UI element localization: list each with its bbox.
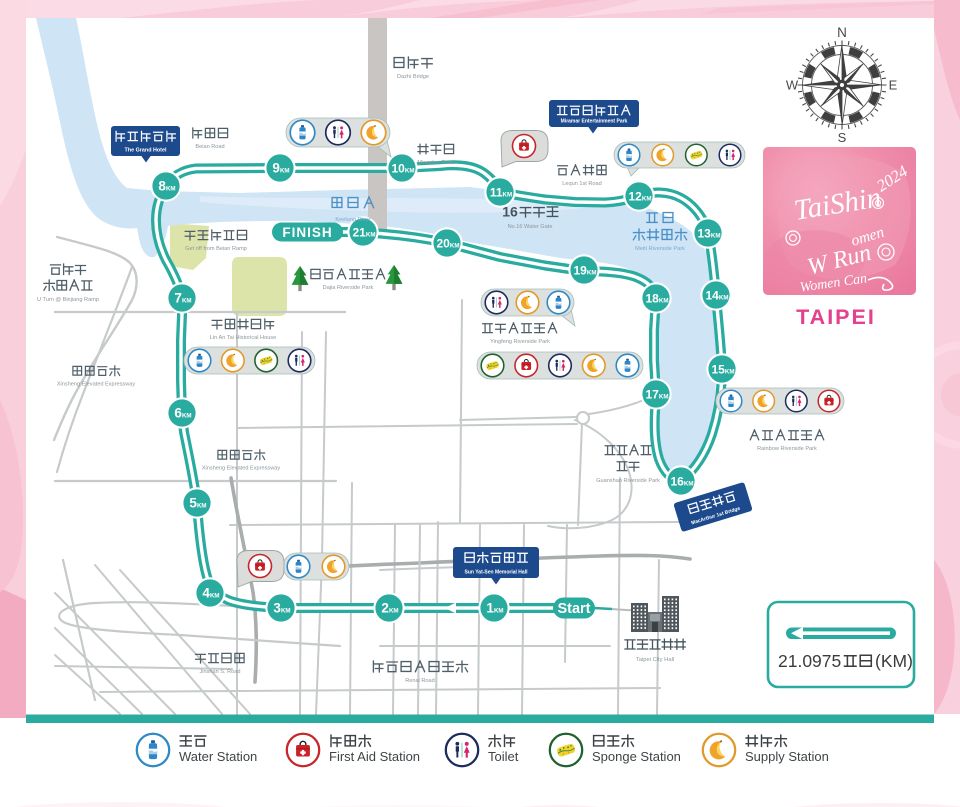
svg-text:No.16 Water Gate: No.16 Water Gate: [508, 224, 553, 230]
svg-text:Jinshan S. Road: Jinshan S. Road: [199, 669, 240, 675]
svg-text:FINISH: FINISH: [282, 225, 332, 240]
svg-text:Xinsheng Elevated Expressway: Xinsheng Elevated Expressway: [57, 382, 136, 388]
svg-text:E: E: [889, 78, 898, 93]
svg-text:Start: Start: [557, 601, 590, 617]
svg-text:Toilet: Toilet: [488, 749, 519, 764]
svg-text:Mingshui Road: Mingshui Road: [417, 160, 454, 166]
svg-text:Meiti Riverside Park: Meiti Riverside Park: [635, 246, 685, 252]
svg-text:Lin An Tai Historical House: Lin An Tai Historical House: [210, 335, 276, 341]
svg-text:Dazhi Bridge: Dazhi Bridge: [397, 74, 429, 80]
svg-text:Sun Yat-Sen Memorial Hall: Sun Yat-Sen Memorial Hall: [465, 570, 529, 576]
svg-text:S: S: [838, 130, 847, 145]
svg-text:Beian Road: Beian Road: [195, 144, 224, 150]
svg-text:U Turn @ Binjiang Ramp: U Turn @ Binjiang Ramp: [37, 297, 99, 303]
svg-text:Rainbow Riverside Park: Rainbow Riverside Park: [757, 446, 817, 452]
svg-text:Sponge Station: Sponge Station: [592, 749, 681, 764]
svg-text:Yingfeng Riverside Park: Yingfeng Riverside Park: [490, 339, 550, 345]
svg-text:Xinsheng Elevated Expressway: Xinsheng Elevated Expressway: [202, 466, 281, 472]
svg-text:N: N: [837, 25, 847, 40]
svg-text:Water Station: Water Station: [179, 749, 257, 764]
svg-text:Lequn 1st Road: Lequn 1st Road: [562, 181, 602, 187]
svg-text:Supply Station: Supply Station: [745, 749, 829, 764]
svg-text:Dajia Riverside Park: Dajia Riverside Park: [323, 285, 374, 291]
svg-text:Guanshan Riverside Park: Guanshan Riverside Park: [596, 478, 660, 484]
svg-text:21.0975: 21.0975: [778, 651, 841, 671]
svg-text:16: 16: [502, 204, 518, 220]
svg-text:Get off from Beian Ramp: Get off from Beian Ramp: [185, 246, 247, 252]
svg-text:The Grand Hotel: The Grand Hotel: [125, 148, 167, 154]
svg-text:Miramar Entertainment Park: Miramar Entertainment Park: [561, 119, 628, 125]
svg-text:Keelung River: Keelung River: [335, 217, 370, 223]
svg-text:Renai Road: Renai Road: [405, 678, 435, 684]
svg-text:TAIPEI: TAIPEI: [796, 305, 876, 329]
svg-text:First Aid Station: First Aid Station: [329, 749, 420, 764]
svg-text:W: W: [786, 78, 799, 93]
svg-text:Taipei City Hall: Taipei City Hall: [636, 657, 674, 663]
svg-text:(KM): (KM): [875, 651, 913, 671]
